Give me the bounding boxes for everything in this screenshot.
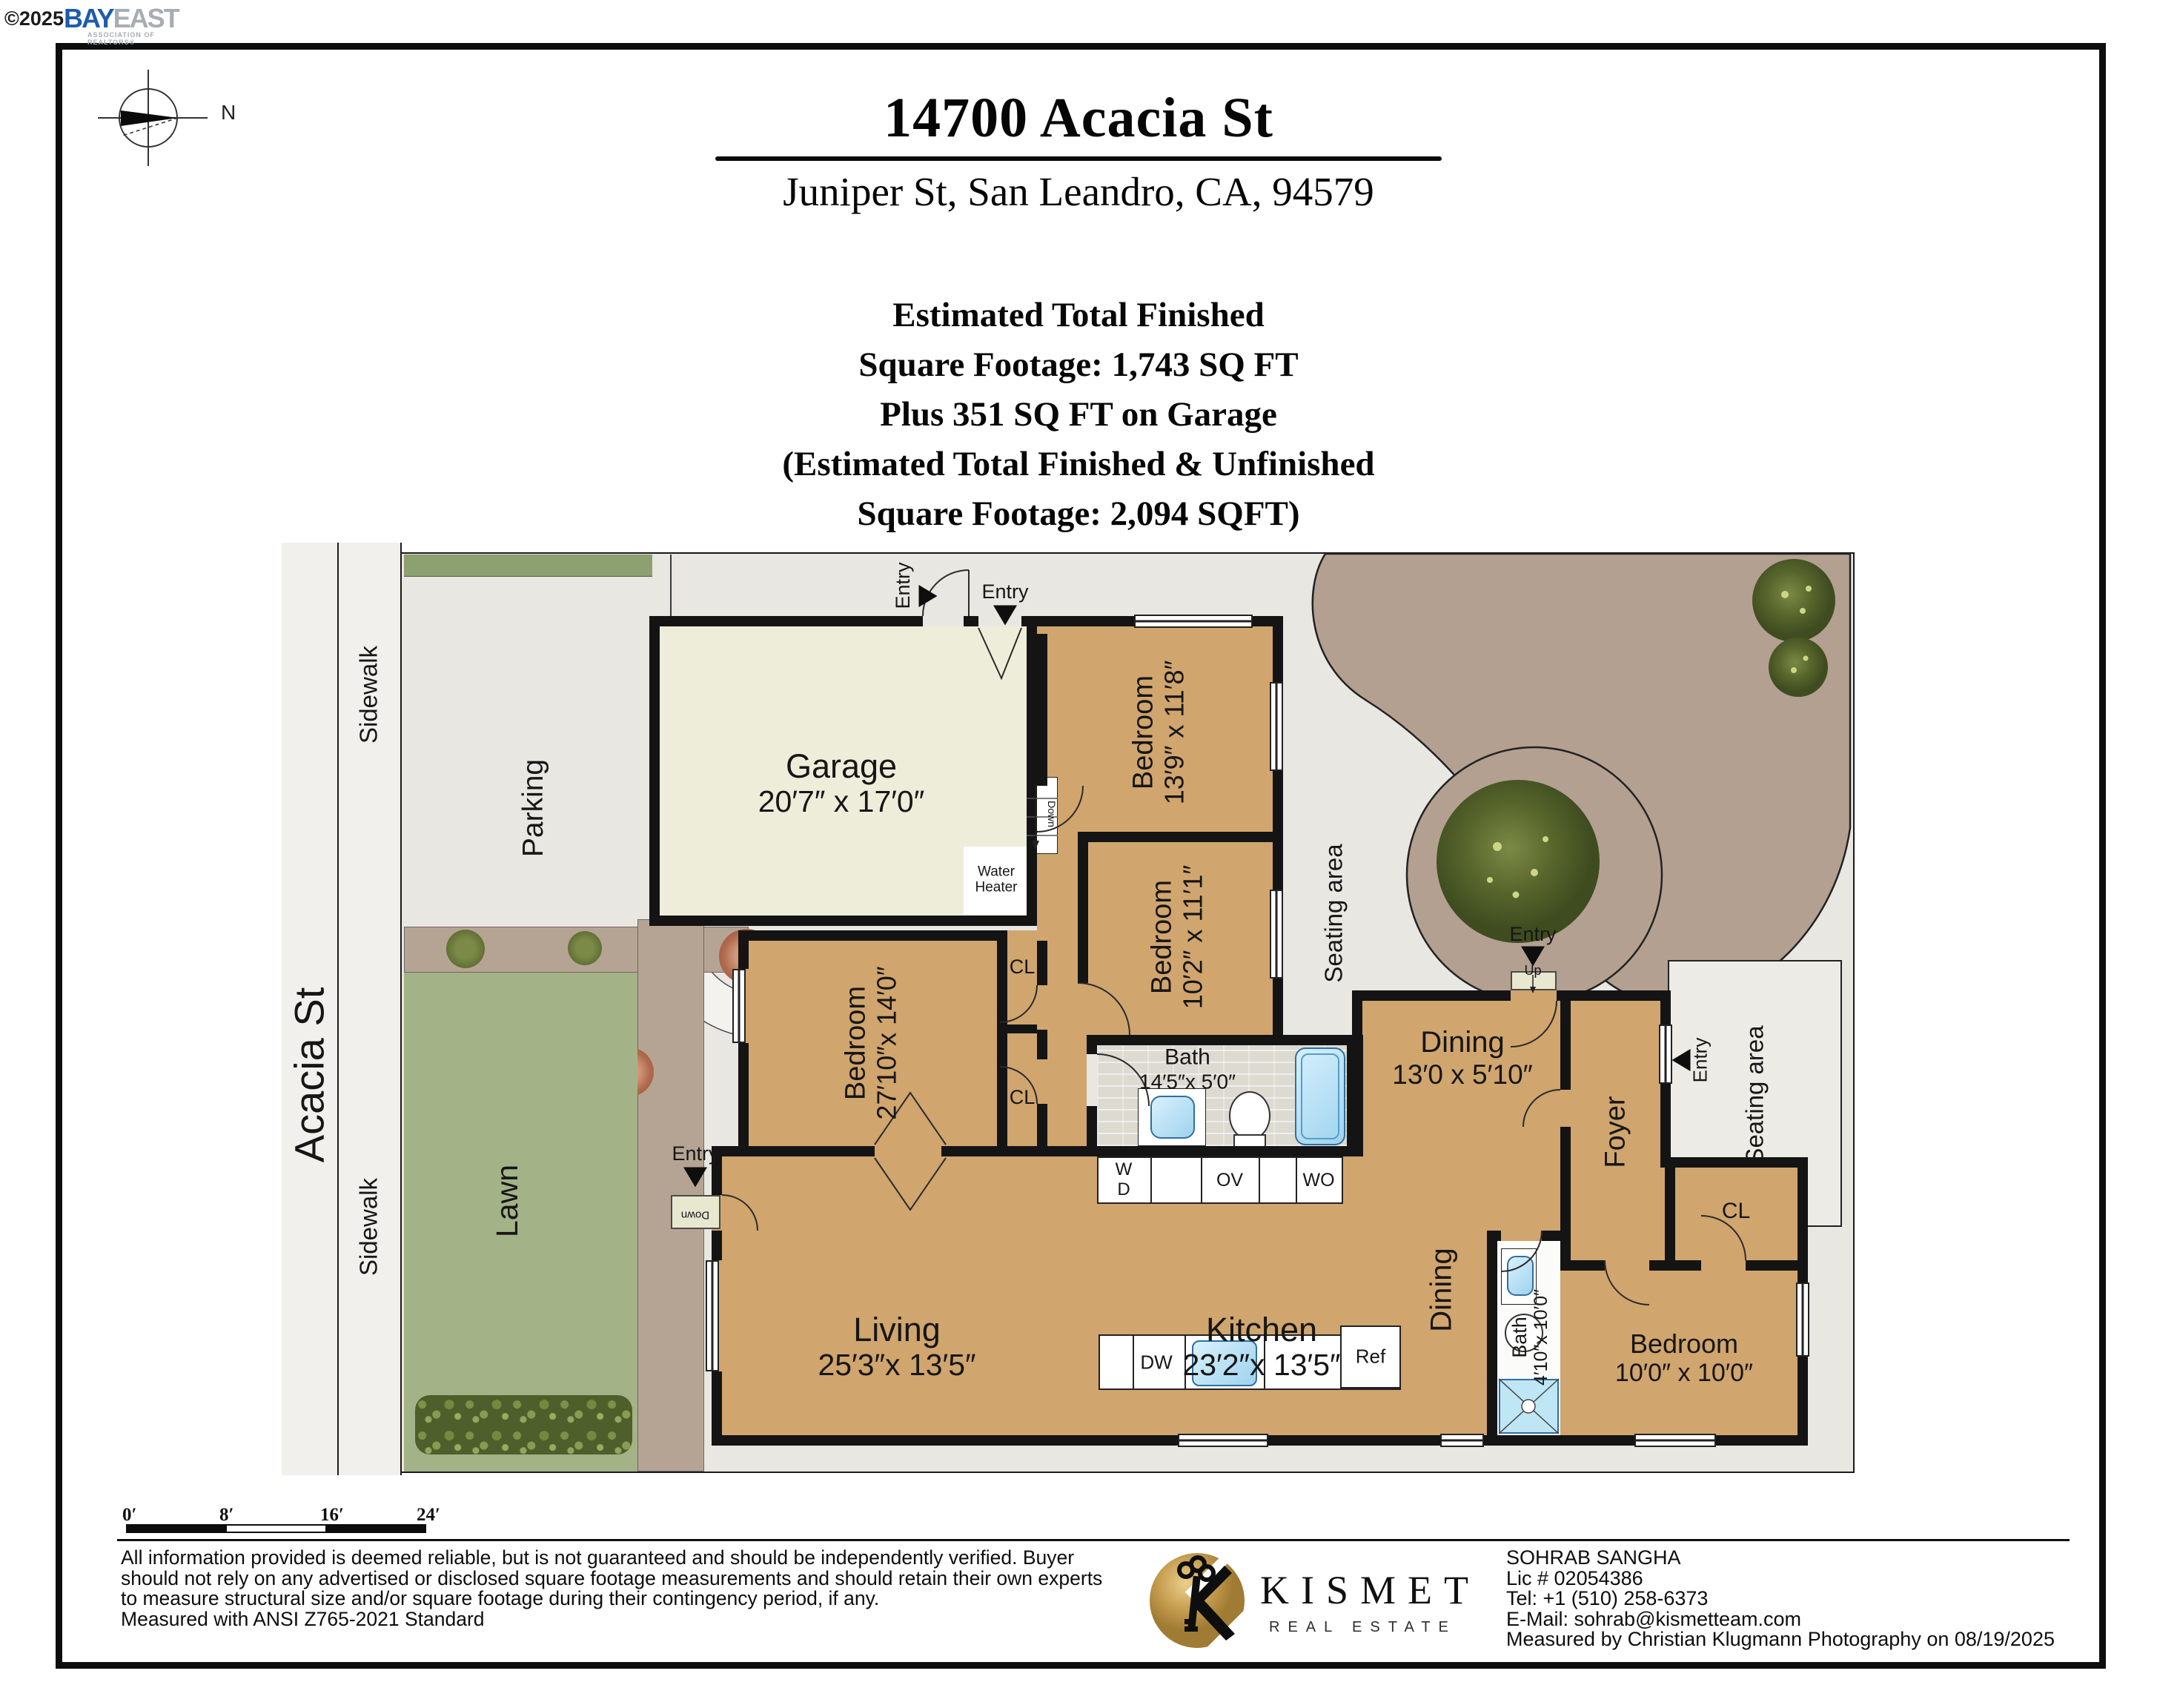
door-arc: [1000, 985, 1037, 1022]
scale-tick: 16′: [320, 1505, 344, 1526]
door-swing: [875, 1158, 946, 1210]
scale-segment: [327, 1524, 426, 1533]
living-label: Living 25′3″x 13′5″: [818, 1311, 975, 1383]
porch-arrow-head: [1530, 987, 1536, 993]
agent-license: Lic # 02054386: [1506, 1569, 2157, 1589]
agent-info: SOHRAB SANGHA Lic # 02054386 Tel: +1 (51…: [1506, 1548, 2157, 1650]
water-heater-label: Water Heater: [964, 864, 1028, 896]
door-swing: [978, 628, 1021, 678]
bedroom-w-label: Bedroom 27′10″x 14′0″: [841, 966, 902, 1119]
agent-phone: Tel: +1 (510) 258-6373: [1506, 1589, 2157, 1609]
bedroom-e-label: Bedroom 10′2″ x 11′1″: [1147, 865, 1208, 1009]
sqft-summary: Estimated Total Finished Square Footage:…: [0, 291, 2157, 539]
closet-label: CL: [1722, 1199, 1750, 1224]
dining2-label: Dining: [1425, 1248, 1459, 1331]
sqft-line: Estimated Total Finished: [0, 291, 2157, 340]
bayeast-logo-subtext: ASSOCIATION OF REALTORS®: [87, 31, 179, 46]
closet-label: CL: [1010, 1086, 1036, 1108]
brand-tagline: REAL ESTATE: [1269, 1619, 1457, 1636]
entry-label-back: Entry: [1509, 923, 1556, 945]
bayeast-logo-east: EAST: [113, 3, 179, 34]
up-label: Up: [1524, 963, 1541, 978]
floorplan-page: ©2025 BAY EAST ASSOCIATION OF REALTORS® …: [0, 0, 2157, 1708]
agent-email: E-Mail: sohrab@kismetteam.com: [1506, 1609, 2157, 1630]
dining-label: Dining 13′0 x 5′10″: [1392, 1026, 1533, 1090]
ansi-standard-text: Measured with ANSI Z765-2021 Standard: [121, 1609, 1121, 1630]
door-arc: [1605, 1260, 1649, 1305]
disclaimer-text: All information provided is deemed relia…: [121, 1548, 1121, 1609]
stair-arrow-head: [1032, 841, 1039, 850]
scale-tick: 8′: [219, 1505, 234, 1526]
brand-name: KISMET: [1260, 1567, 1480, 1613]
measured-by: Measured by Christian Klugmann Photograp…: [1506, 1629, 2157, 1650]
disclaimer-block: All information provided is deemed relia…: [121, 1548, 1121, 1629]
washer-dryer-label: W D: [1116, 1160, 1133, 1200]
copyright-text: ©2025: [4, 7, 64, 30]
bayeast-logo: ©2025 BAY EAST ASSOCIATION OF REALTORS®: [4, 3, 179, 34]
scale-tick: 0′: [122, 1505, 137, 1526]
title-block: 14700 Acacia St Juniper St, San Leandro,…: [0, 86, 2157, 215]
down-label-west: Down: [681, 1208, 709, 1221]
foyer-label: Foyer: [1600, 1096, 1632, 1168]
door-arc: [1523, 1090, 1560, 1127]
bath-small-label: Bath 4′10″x 10′0″: [1508, 1289, 1551, 1386]
scale-segment: [225, 1524, 327, 1533]
door-arc: [1037, 786, 1083, 832]
sqft-line: Plus 351 SQ FT on Garage: [0, 390, 2157, 440]
bedroom-ne-label: Bedroom 13′9″ x 11′8″: [1128, 661, 1190, 804]
scale-bar: [126, 1524, 426, 1533]
sqft-line: (Estimated Total Finished & Unfinished: [0, 440, 2157, 489]
entry-arrow-icon: [919, 585, 938, 607]
scale-segment: [126, 1524, 225, 1533]
bath-main-label: Bath 14′5″x 5′0″: [1139, 1045, 1236, 1093]
sqft-line: Square Footage: 2,094 SQFT): [0, 489, 2157, 539]
kitchen-label: Kitchen 23′2″x 13′5″: [1182, 1311, 1340, 1383]
fridge-label: Ref: [1356, 1345, 1385, 1367]
closet-label: CL: [1010, 956, 1036, 978]
entry-label-garage-side: Entry: [892, 562, 914, 609]
scale-tick: 24′: [417, 1505, 440, 1526]
oven-label: OV: [1216, 1170, 1243, 1191]
footer-divider: [117, 1539, 2070, 1541]
door-arc: [1078, 983, 1130, 1035]
bedroom-se-label: Bedroom 10′0″ x 10′0″: [1615, 1329, 1753, 1387]
address-subtitle: Juniper St, San Leandro, CA, 94579: [0, 168, 2157, 215]
down-label-stairs: Down: [1045, 801, 1057, 827]
entry-label-garage-front: Entry: [981, 580, 1028, 603]
entry-label-west: Entry: [672, 1142, 718, 1165]
door-arc: [1501, 1231, 1542, 1271]
wall-oven-label: WO: [1302, 1170, 1334, 1191]
garage-label: Garage 20′7″ x 17′0″: [758, 748, 925, 819]
door-arc: [722, 1195, 758, 1231]
bayeast-logo-bay: BAY: [64, 3, 113, 34]
entry-arrow-icon: [993, 606, 1017, 626]
page-title: 14700 Acacia St: [0, 86, 2157, 150]
kismet-logo-icon: [1147, 1551, 1247, 1650]
shower-drain: [1522, 1400, 1535, 1413]
entry-label-east: Entry: [1689, 1038, 1711, 1083]
sqft-line: Square Footage: 1,743 SQ FT: [0, 340, 2157, 390]
dishwasher-label: DW: [1140, 1351, 1172, 1373]
site-plan: Acacia St Sidewalk Sidewalk Parking: [282, 543, 1868, 1475]
agent-name: SOHRAB SANGHA: [1506, 1548, 2157, 1569]
title-underline: [715, 156, 1442, 161]
entry-arrow-icon: [1672, 1049, 1691, 1071]
entry-arrow-icon: [683, 1168, 707, 1188]
